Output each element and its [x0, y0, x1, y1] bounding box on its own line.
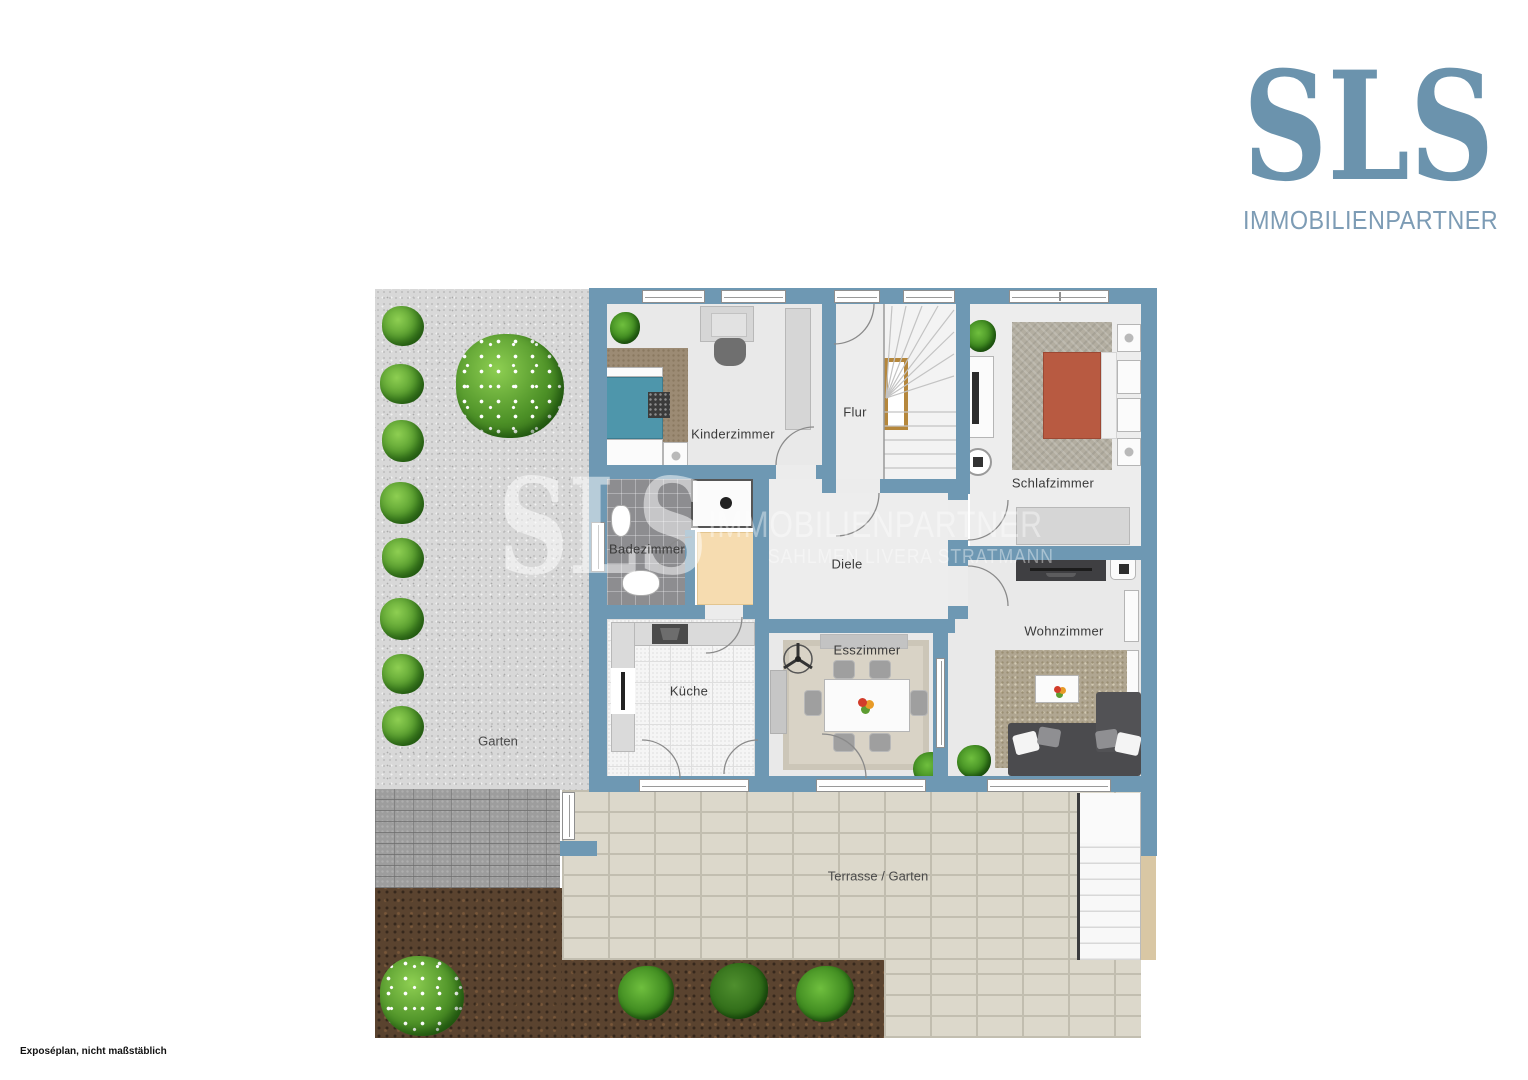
- label-esszimmer: Esszimmer: [834, 643, 901, 658]
- toilet-icon: [611, 505, 631, 537]
- wall-shelf: [1124, 590, 1139, 642]
- double-bed: [1043, 352, 1101, 439]
- wall-flur-schlafzimmer: [956, 304, 970, 494]
- shower: [691, 479, 753, 528]
- logo-subtitle-wrap: IMMOBILIENPARTNER: [1243, 205, 1526, 236]
- door-gap: [948, 500, 968, 540]
- bush-icon: [382, 706, 424, 746]
- dark-paving-area: [375, 789, 560, 888]
- label-kinderzimmer: Kinderzimmer: [691, 427, 775, 442]
- window-wohnzimmer: [987, 779, 1111, 792]
- bush-icon: [380, 482, 424, 524]
- dining-chair: [833, 733, 855, 752]
- wall-diele-esszimmer: [755, 619, 955, 633]
- nightstand: [1117, 438, 1141, 466]
- door-gap: [836, 479, 880, 493]
- exterior-stairs: [1077, 793, 1141, 960]
- tv-icon: [972, 372, 979, 424]
- terrace-side-window: [562, 792, 575, 840]
- wall-kinderzimmer-flur: [822, 304, 836, 479]
- door-gap: [776, 465, 816, 479]
- dining-table: [824, 679, 910, 732]
- bed-sheet: [1101, 352, 1117, 439]
- tv-panel: [966, 356, 994, 438]
- wall-bad-inner: [685, 530, 695, 605]
- wall-bad-diele: [753, 479, 769, 619]
- bush-icon: [382, 654, 424, 694]
- label-flur: Flur: [843, 405, 867, 420]
- wall-kueche-esszimmer: [755, 619, 769, 776]
- interior-window: [936, 658, 945, 748]
- bush-icon: [382, 306, 424, 346]
- desk-chair: [714, 338, 746, 366]
- dining-chair: [804, 690, 822, 716]
- wall-schlafzimmer-wohnzimmer: [968, 546, 1141, 560]
- nightstand: [1117, 324, 1141, 352]
- kids-wardrobe: [785, 308, 811, 430]
- window-stairs: [903, 290, 955, 303]
- label-kueche: Küche: [670, 684, 708, 699]
- bush-icon: [382, 420, 424, 462]
- garden-wall-stub: [560, 841, 597, 856]
- desk: [700, 306, 754, 342]
- window-badezimmer: [591, 522, 605, 572]
- sink-icon: [622, 570, 660, 596]
- window-kinderzimmer-1: [642, 290, 705, 303]
- coffee-table: [1035, 675, 1079, 703]
- room-diele: [769, 479, 948, 619]
- kitchen-side-door: [611, 668, 635, 714]
- window-kinderzimmer-2: [721, 290, 786, 303]
- flowering-bush-icon: [456, 334, 564, 438]
- bedroom-wardrobe: [1016, 507, 1130, 545]
- dining-chair: [910, 690, 928, 716]
- sofa-pillow: [1037, 726, 1062, 748]
- bush-icon: [382, 538, 424, 578]
- logo-subtitle: IMMOBILIENPARTNER: [1243, 205, 1498, 236]
- label-terrasse: Terrasse / Garten: [828, 869, 928, 884]
- hall-wardrobe: [697, 532, 754, 605]
- label-schlafzimmer: Schlafzimmer: [1012, 476, 1094, 491]
- terrace-area-lower: [884, 960, 1141, 1038]
- label-badezimmer: Badezimmer: [609, 542, 685, 557]
- radiator: [770, 670, 787, 734]
- door-gap: [948, 566, 968, 606]
- stairwell-window: [884, 358, 908, 430]
- dark-mat: [648, 392, 670, 418]
- floorplan-page: SLS IMMOBILIENPARTNER: [0, 0, 1528, 1080]
- kids-bed-headboard: [603, 367, 663, 377]
- window-flur: [834, 290, 880, 303]
- label-garten: Garten: [478, 734, 518, 749]
- bush-icon: [380, 364, 424, 404]
- terrace-door-kueche: [639, 779, 749, 792]
- wall-right: [1141, 288, 1157, 856]
- door-gap: [705, 605, 743, 619]
- footer-note: Exposéplan, nicht maßstäblich: [20, 1046, 167, 1057]
- bush-icon: [380, 598, 424, 640]
- label-wohnzimmer: Wohnzimmer: [1024, 624, 1103, 639]
- stair-side-strip: [1141, 856, 1156, 960]
- stove-icon: [652, 624, 688, 644]
- logo-title: SLS: [1243, 52, 1494, 202]
- window-schlafzimmer: [1009, 290, 1109, 303]
- dining-chair: [869, 660, 891, 679]
- fruit-bowl-icon: [858, 698, 867, 707]
- tv-sideboard: [1016, 560, 1106, 581]
- company-logo: SLS: [1243, 52, 1528, 202]
- dining-chair: [833, 660, 855, 679]
- terrace-door-esszimmer: [816, 779, 926, 792]
- bed-pillow: [1117, 360, 1141, 394]
- flowering-bush-icon: [380, 956, 464, 1036]
- label-diele: Diele: [831, 557, 862, 572]
- dining-chair: [869, 733, 891, 752]
- bed-pillow: [1117, 398, 1141, 432]
